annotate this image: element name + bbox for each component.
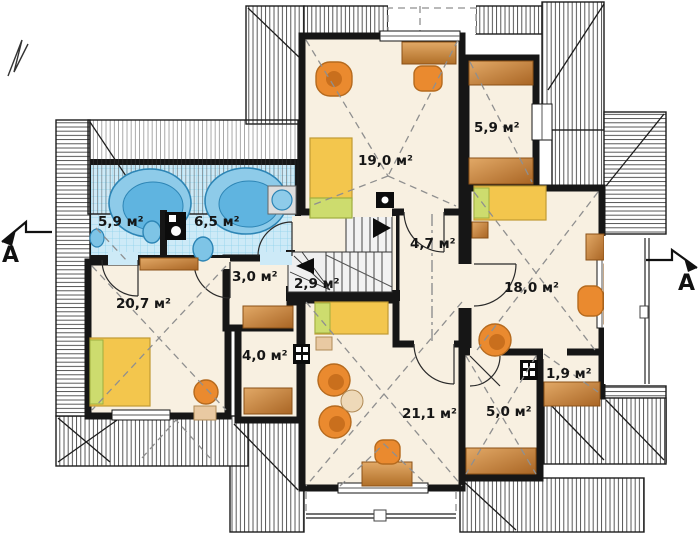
roof-panel (304, 6, 388, 34)
roof-panel (460, 478, 644, 532)
toilet-icon (143, 221, 161, 243)
shelf (469, 61, 533, 85)
door-opening (543, 348, 567, 359)
terrace-bottom (306, 510, 456, 521)
armchair-seat (328, 374, 344, 390)
shelf (243, 306, 293, 328)
chair-icon (578, 286, 603, 316)
door-opening (108, 252, 138, 265)
room-label-bathroom-large: 6,5 м² (194, 214, 240, 230)
stool-icon (194, 380, 218, 404)
room-label-bedroom-right: 18,0 м² (504, 280, 559, 296)
section-label-right: A (678, 271, 695, 296)
room-label-room-bottom: 5,0 м² (486, 404, 532, 420)
room-label-bedroom-left: 20,7 м² (116, 296, 171, 312)
door-opening (404, 206, 444, 217)
door-opening (414, 338, 454, 349)
roof-panel (476, 6, 542, 34)
chair-icon (326, 71, 342, 87)
sink-icon (268, 186, 296, 214)
room-label-hallway: 4,7 м² (410, 236, 456, 252)
room-label-staircase: 2,9 м² (294, 276, 340, 292)
nightstand (472, 222, 488, 238)
bench (194, 406, 216, 420)
roof-panel (246, 6, 304, 124)
bed (310, 138, 352, 200)
room-label-corridor: 3,0 м² (232, 269, 278, 285)
washing-machine-icon (165, 212, 186, 240)
roof-panel (544, 398, 666, 464)
media-unit-icon (293, 344, 310, 364)
door-opening (458, 264, 474, 308)
break-mark (8, 40, 28, 76)
room-hallway (396, 212, 462, 344)
chair-icon (414, 66, 442, 91)
section-marker-right: A (646, 250, 697, 296)
shelf (469, 158, 533, 184)
shelf (544, 382, 600, 406)
room-label-closet-left: 4,0 м² (242, 348, 288, 364)
window-bedroom-left (112, 410, 170, 420)
railing-post (374, 510, 386, 521)
bed-pillow (310, 198, 352, 218)
window-wardrobe (532, 104, 552, 140)
armchair-seat (489, 334, 505, 350)
room-label-wardrobe-top: 5,9 м² (474, 120, 520, 136)
dresser (140, 258, 198, 270)
dormer-roof (388, 2, 476, 34)
floor-plan: A A 5,9 м² 6,5 м² 5,9 м² 19,0 м² 4,7 м² … (0, 0, 700, 536)
chair-icon (375, 440, 400, 464)
toilet-icon (193, 237, 213, 261)
section-marker-left: A (2, 222, 52, 268)
balcony-right (604, 236, 649, 384)
hvac-unit-icon (520, 360, 538, 380)
floor-plan-drawing: A A 5,9 м² 6,5 м² 5,9 м² 19,0 м² 4,7 м² … (0, 0, 700, 536)
door-opening (260, 252, 292, 265)
round-table (341, 390, 363, 412)
dresser (586, 234, 604, 260)
bidet-icon (90, 229, 104, 247)
room-label-living: 21,1 м² (402, 406, 457, 422)
roof-panel (604, 112, 666, 234)
roof-panel (552, 130, 606, 190)
bed-pillow (474, 188, 489, 218)
sofa-pillow (315, 303, 330, 333)
armchair-seat (329, 416, 345, 432)
tv-unit-icon (376, 192, 394, 208)
railing-post (640, 306, 648, 318)
section-label-left: A (2, 243, 19, 268)
side-table (316, 337, 332, 350)
section-arrow-icon (684, 258, 697, 272)
stairs-upper-flight (346, 216, 392, 252)
room-label-bedroom-top: 19,0 м² (358, 153, 413, 169)
shelf (244, 388, 292, 414)
room-label-bathroom-small: 5,9 м² (98, 214, 144, 230)
bed-pillow (90, 340, 103, 404)
desk (362, 462, 412, 486)
shelf (466, 448, 536, 474)
desk (402, 42, 456, 64)
window-top (380, 31, 460, 41)
room-label-storage-small: 1,9 м² (546, 366, 592, 382)
